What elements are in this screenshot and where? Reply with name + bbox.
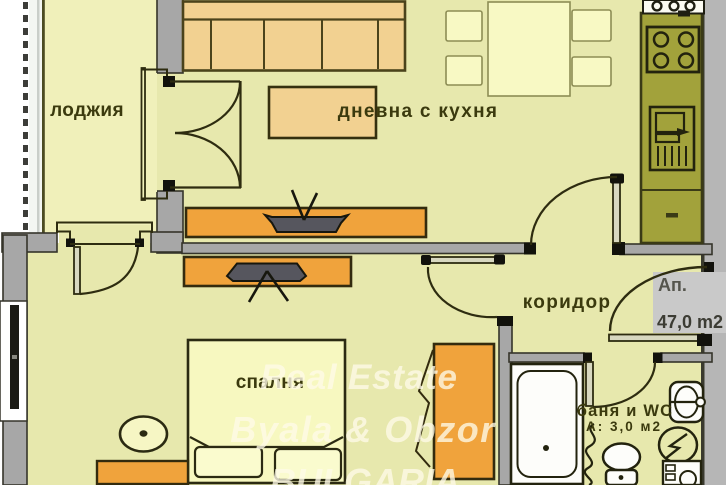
svg-text:баня и WC: баня и WC [577, 402, 674, 420]
svg-text:коридор: коридор [523, 292, 612, 313]
svg-text:дневна с кухня: дневна с кухня [338, 101, 499, 122]
svg-text:47,0 m2: 47,0 m2 [657, 312, 723, 332]
svg-text:Real Estate: Real Estate [260, 358, 458, 397]
svg-text:A: 3,0 м2: A: 3,0 м2 [586, 419, 662, 434]
svg-text:Byala & Obzor: Byala & Obzor [230, 409, 496, 450]
svg-text:Ап.: Ап. [658, 275, 687, 295]
svg-text:лоджия: лоджия [50, 100, 124, 121]
svg-text:BULGARIA: BULGARIA [270, 461, 460, 485]
